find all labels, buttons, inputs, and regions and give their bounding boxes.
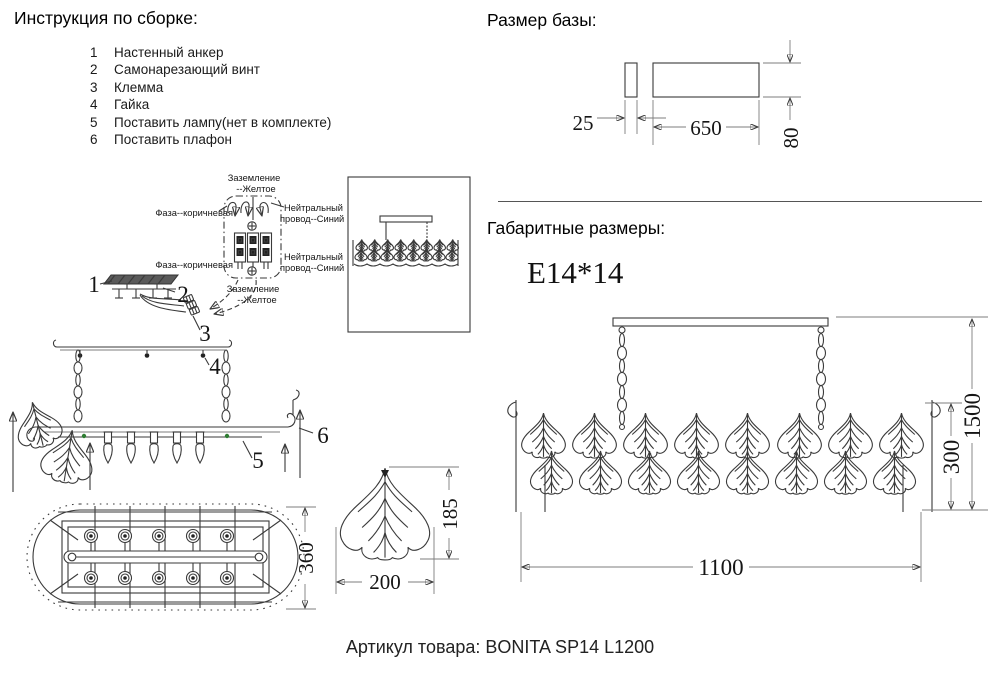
item-label: Клемма [114,79,163,96]
label-neutral-bottom-2: провод--Синий [280,263,344,273]
label-ground-top-1: Заземление [228,173,281,183]
side-view-drawing: 5 6 [11,390,329,492]
callout-1: 1 [88,272,100,297]
dim-360: 360 [294,542,318,574]
big-chain-right [817,334,826,430]
assembly-diagram: 1 2 3 4 [53,272,231,422]
dim-1100: 1100 [698,555,743,580]
callout-3: 3 [199,321,211,346]
socket-row-top [85,530,234,552]
label-ground-bottom-2: --Желтое [237,295,276,305]
socket-type-label: E14*14 [527,255,623,291]
callout-5: 5 [252,448,264,473]
chain-left [74,350,82,422]
dim-25: 25 [573,111,594,135]
overall-dimensions-drawing: 1500 300 1100 [508,317,988,582]
overall-dimensions-title: Габаритные размеры: [487,218,665,239]
chain-right [222,350,230,422]
terminal-block [235,233,272,269]
list-item: 2Самонарезающий винт [90,61,331,78]
label-phase-bottom: Фаза--коричневая [155,260,233,270]
dim-650: 650 [690,116,722,140]
base-size-drawing: 25 650 80 [573,40,804,149]
base-size-title: Размер базы: [487,10,597,31]
instruction-sheet: 25 650 80 Заземление --Желтое Фаза--кори… [0,0,1000,690]
dim-80: 80 [779,128,803,149]
shade-detail-drawing: 185 200 [336,467,462,594]
top-view-drawing: 360 [27,504,318,610]
dim-185: 185 [438,498,462,530]
leaf-row-top [522,413,924,458]
callout-2: 2 [177,282,189,307]
socket-row-bottom [85,563,234,585]
label-neutral-bottom-1: Нейтральный [284,252,343,262]
item-label: Настенный анкер [114,44,224,61]
dim-300: 300 [939,440,964,475]
label-phase-top: Фаза--коричневая [155,208,233,218]
item-label: Поставить плафон [114,131,232,148]
dim-200: 200 [369,570,401,594]
item-number: 2 [90,61,104,78]
dim-1500: 1500 [960,393,985,439]
item-label: Гайка [114,96,149,113]
article-number: Артикул товара: BONITA SP14 L1200 [0,637,1000,658]
callout-6: 6 [317,423,329,448]
label-ground-top-2: --Желтое [236,184,275,194]
item-number: 1 [90,44,104,61]
list-item: 3Клемма [90,79,331,96]
list-item: 1Настенный анкер [90,44,331,61]
preview-box [348,177,470,332]
preview-leaves-top [356,239,458,251]
instructions-list: 1Настенный анкер 2Самонарезающий винт 3К… [90,44,331,148]
label-neutral-top-1: Нейтральный [284,203,343,213]
item-number: 5 [90,114,104,131]
item-number: 6 [90,131,104,148]
callout-4: 4 [209,354,221,379]
big-chain-left [618,334,627,430]
item-number: 4 [90,96,104,113]
list-item: 6Поставить плафон [90,131,331,148]
item-label: Поставить лампу(нет в комплекте) [114,114,331,131]
label-ground-bottom-1: Заземление [227,284,280,294]
candle-bulbs [104,444,205,463]
list-item: 5Поставить лампу(нет в комплекте) [90,114,331,131]
section-divider [498,201,982,202]
item-label: Самонарезающий винт [114,61,260,78]
label-neutral-top-2: провод--Синий [280,214,344,224]
list-item: 4Гайка [90,96,331,113]
item-number: 3 [90,79,104,96]
instructions-title: Инструкция по сборке: [14,8,198,29]
